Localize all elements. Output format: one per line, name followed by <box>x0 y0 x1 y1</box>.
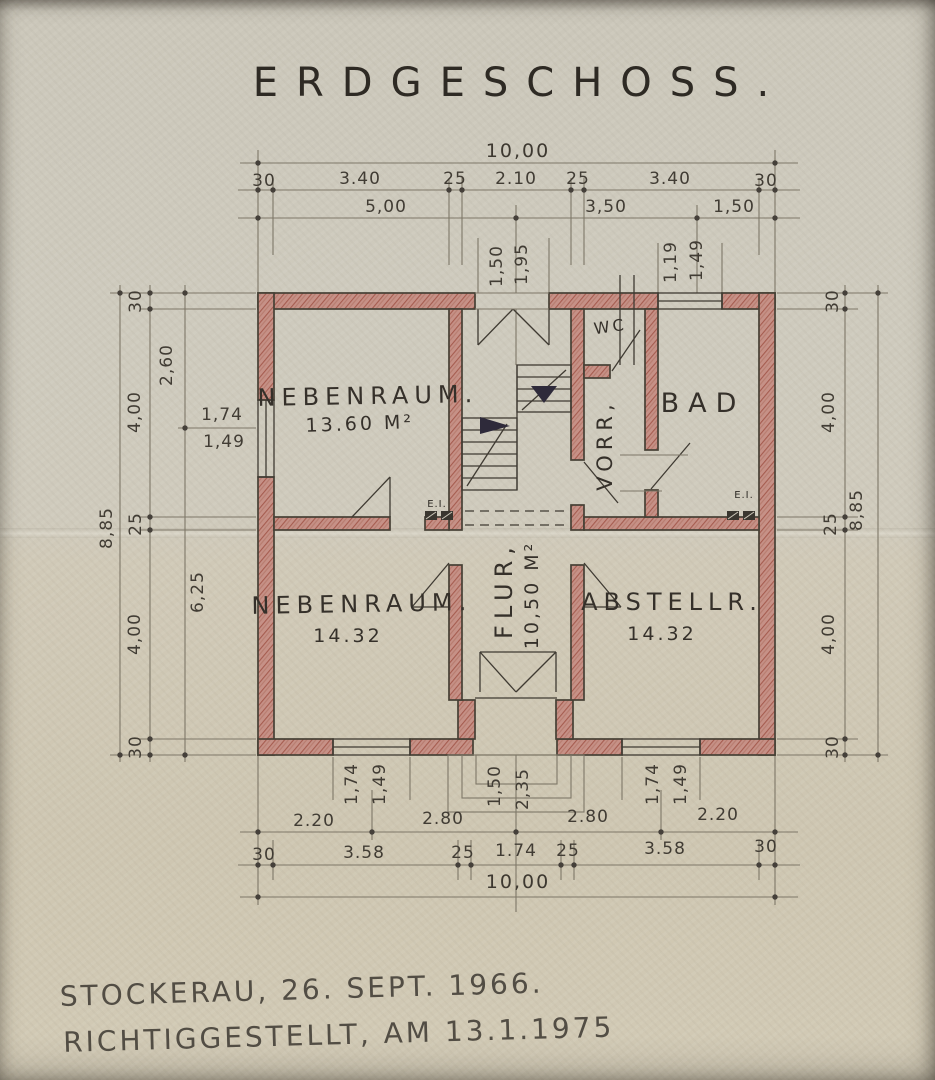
dim-left-inner-1: 6,25 <box>188 571 208 613</box>
window-bottom-right <box>622 739 700 755</box>
dim-left-inner-0: 2,60 <box>157 344 177 386</box>
dim-bottom-sub-0: 2.20 <box>293 811 335 831</box>
dim-top-chain-4: 25 <box>566 169 590 189</box>
room-label-nebenraum-top: NEBENRAUM. <box>257 380 478 412</box>
dim-left-window-1: 1,49 <box>203 432 245 452</box>
stair-arrow-up <box>480 417 510 434</box>
dim-right-overall: 8,85 <box>847 489 867 531</box>
floorplan-drawing: ERDGESCHOSS. NEBENRAUM. 13.60 M² NEBENRA… <box>0 0 935 1080</box>
dim-bottom-chain-3: 1.74 <box>495 841 537 861</box>
dim-entry-steps-0: 1,50 <box>485 765 505 807</box>
ceiling-dashed-lines <box>465 511 570 525</box>
dim-top-sub-2: 1,50 <box>713 197 755 217</box>
door-wc <box>612 330 640 371</box>
dim-bottom-window-right-0: 1,74 <box>643 763 663 805</box>
dim-right-chain-0: 30 <box>823 289 843 313</box>
dim-bad-window-1: 1,49 <box>687 239 707 281</box>
door-nebenraum-top <box>352 477 390 517</box>
room-area-flur: 10,50 M² <box>521 541 543 649</box>
dim-bottom-sub-1: 2.80 <box>422 809 464 829</box>
dim-rear-door-0: 1,50 <box>487 245 507 287</box>
door-front-entrance <box>475 652 557 698</box>
dim-left-window-0: 1,74 <box>201 405 243 425</box>
room-label-abstellraum: ABSTELLR. <box>581 588 763 616</box>
dim-left-chain-0: 30 <box>126 289 146 313</box>
dim-entry-steps-1: 2,35 <box>513 768 533 810</box>
room-label-bad: BAD <box>661 388 746 419</box>
dim-left-chain-2: 25 <box>126 512 146 536</box>
dim-bottom-window-left-1: 1,49 <box>370 763 390 805</box>
room-area-abstellraum: 14.32 <box>627 623 696 645</box>
footer-date-line: STOCKERAU, 26. SEPT. 1966. <box>59 966 544 1012</box>
dim-rear-door-1: 1,95 <box>512 243 532 285</box>
dim-left-chain-3: 4,00 <box>125 613 145 655</box>
footer-notes: STOCKERAU, 26. SEPT. 1966. RICHTIGGESTEL… <box>59 965 614 1059</box>
scanned-floorplan-page: ERDGESCHOSS. NEBENRAUM. 13.60 M² NEBENRA… <box>0 0 935 1080</box>
dim-top-chain-3: 2.10 <box>495 169 537 189</box>
dim-bottom-chain-2: 25 <box>451 843 475 863</box>
page-title: ERDGESCHOSS. <box>253 60 788 106</box>
dim-left-chain-1: 4,00 <box>125 391 145 433</box>
room-area-nebenraum-bottom: 14.32 <box>313 625 382 647</box>
dim-top-chain-0: 30 <box>252 171 276 191</box>
dim-bottom-overall: 10,00 <box>486 871 550 893</box>
dim-bottom-chain-6: 30 <box>754 837 778 857</box>
ei-label-left: E.I. <box>427 499 447 510</box>
dim-right-chain-2: 25 <box>821 512 841 536</box>
room-label-nebenraum-bottom: NEBENRAUM. <box>251 588 472 620</box>
room-labels: NEBENRAUM. 13.60 M² NEBENRAUM. 14.32 FLU… <box>251 315 763 649</box>
dim-bottom-chain-4: 25 <box>556 841 580 861</box>
dim-bottom-chain-5: 3.58 <box>644 839 686 859</box>
dim-bad-window-0: 1,19 <box>661 241 681 283</box>
dim-top-chain-6: 30 <box>754 171 778 191</box>
dim-top-overall: 10,00 <box>486 140 550 162</box>
room-label-wc: WC <box>593 315 628 338</box>
dim-right-chain-1: 4,00 <box>819 391 839 433</box>
dim-left-overall: 8,85 <box>97 507 117 549</box>
dim-bottom-window-left-0: 1,74 <box>342 763 362 805</box>
dim-bottom-sub-3: 2.20 <box>697 805 739 825</box>
dim-top-chain-2: 25 <box>443 169 467 189</box>
dim-bottom-sub-2: 2.80 <box>567 807 609 827</box>
dim-right-chain-3: 4,00 <box>819 613 839 655</box>
dim-top-sub-1: 3,50 <box>585 197 627 217</box>
room-area-nebenraum-top: 13.60 M² <box>305 411 414 437</box>
room-label-vorraum: VORR, <box>593 399 617 490</box>
window-bottom-left <box>333 739 410 755</box>
footer-correction-line: RICHTIGGESTELLT, AM 13.1.1975 <box>63 1011 615 1059</box>
door-rear-entrance <box>475 293 549 345</box>
dim-bottom-chain-0: 30 <box>252 845 276 865</box>
dim-right-chain-4: 30 <box>823 735 843 759</box>
dim-top-chain-5: 3.40 <box>649 169 691 189</box>
window-top-bad <box>658 293 722 309</box>
dim-top-chain-1: 3.40 <box>339 169 381 189</box>
dim-bottom-window-right-1: 1,49 <box>671 763 691 805</box>
dim-bottom-chain-1: 3.58 <box>343 843 385 863</box>
ei-label-right: E.I. <box>734 490 754 501</box>
room-label-flur: FLUR, <box>490 541 518 639</box>
dim-top-sub-0: 5,00 <box>365 197 407 217</box>
dim-left-chain-4: 30 <box>126 735 146 759</box>
